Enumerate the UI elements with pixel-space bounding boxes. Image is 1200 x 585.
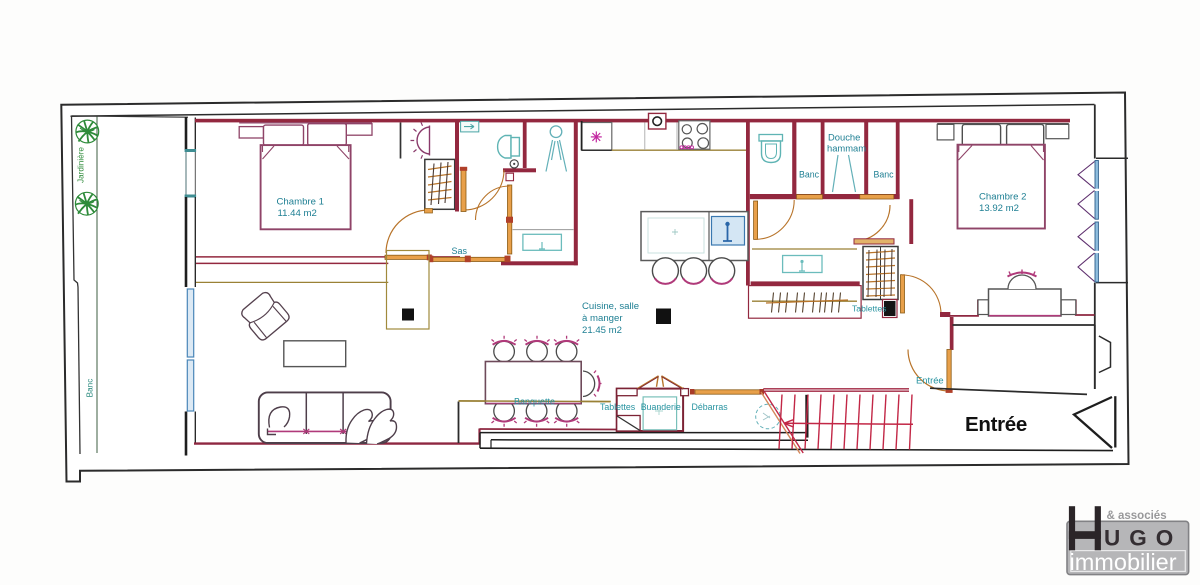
- svg-text:13.92 m2: 13.92 m2: [979, 203, 1019, 214]
- svg-text:Chambre 1: Chambre 1: [277, 197, 324, 208]
- svg-text:Cuisine, salle: Cuisine, salle: [582, 301, 639, 312]
- svg-text:Chambre 2: Chambre 2: [979, 192, 1026, 203]
- svg-text:Tablettes: Tablettes: [600, 402, 636, 412]
- svg-text:Banc: Banc: [86, 379, 95, 398]
- svg-text:Entrée: Entrée: [965, 413, 1027, 436]
- svg-text:immobilier: immobilier: [1070, 549, 1177, 575]
- svg-text:Banc: Banc: [799, 170, 820, 180]
- svg-text:Banc: Banc: [874, 170, 895, 180]
- svg-text:à manger: à manger: [582, 313, 623, 324]
- svg-text:Tablettes: Tablettes: [852, 304, 886, 314]
- svg-text:Sas: Sas: [452, 246, 468, 256]
- svg-text:UGO: UGO: [1104, 525, 1182, 550]
- svg-text:21.45 m2: 21.45 m2: [582, 325, 622, 336]
- svg-text:Entrée: Entrée: [916, 375, 944, 386]
- svg-text:Débarras: Débarras: [692, 402, 729, 412]
- svg-text:11.44 m2: 11.44 m2: [278, 208, 317, 219]
- svg-text:Buanderie: Buanderie: [641, 402, 681, 412]
- svg-text:Banquette: Banquette: [514, 397, 555, 407]
- svg-text:Douche: Douche: [828, 132, 860, 143]
- svg-text:Jardinière: Jardinière: [77, 147, 86, 183]
- svg-text:hammam: hammam: [827, 143, 866, 154]
- svg-text:& associés: & associés: [1107, 510, 1167, 522]
